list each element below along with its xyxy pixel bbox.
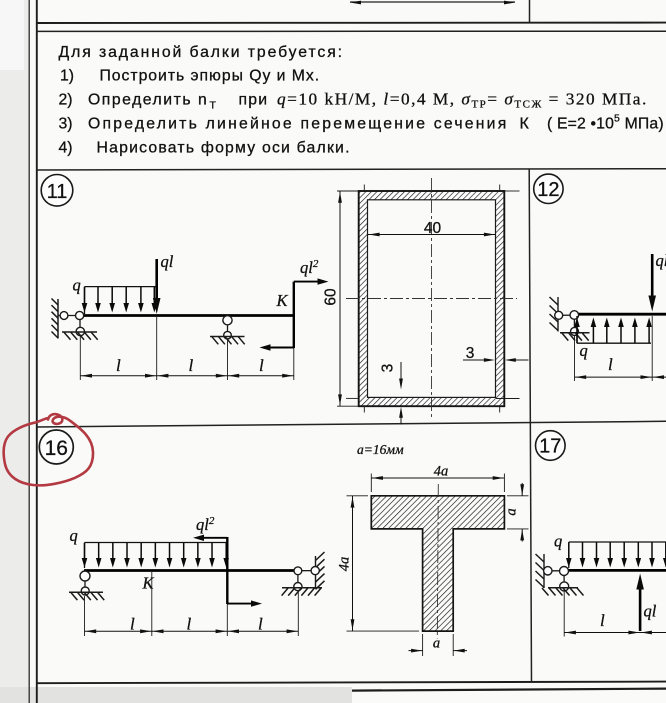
svg-text:l: l [116,356,121,375]
svg-text:q: q [70,526,78,545]
svg-text:3: 3 [466,345,475,362]
svg-text:Нарисовать форму оси балки.: Нарисовать форму оси балки. [97,140,351,157]
svg-text:12: 12 [537,179,559,201]
svg-text:( Е=2 •105 МПа): ( Е=2 •105 МПа) [547,113,664,133]
svg-text:а=16мм: а=16мм [357,442,404,457]
svg-text:11: 11 [47,181,68,203]
svg-text:Определить линейное перемещени: Определить линейное перемещение сечения [88,116,508,133]
svg-text:60: 60 [323,288,340,306]
svg-text:Т: Т [210,100,217,112]
svg-text:q: q [73,276,81,295]
svg-text:a: a [433,636,440,652]
svg-text:16: 16 [45,437,68,460]
svg-text:ql: ql [161,252,174,271]
svg-text:l: l [258,615,263,634]
svg-text:3): 3) [59,116,73,133]
svg-text:2): 2) [59,92,73,109]
svg-text:K: K [276,291,289,310]
svg-text:q: q [554,532,562,551]
svg-text:4a: 4a [337,557,353,572]
svg-text:4): 4) [59,140,73,157]
svg-text:Для заданной балки требуется:: Для заданной балки требуется: [59,44,344,61]
svg-text:при: при [239,92,269,109]
svg-text:q: q [580,341,588,360]
svg-text:l: l [259,356,264,375]
svg-text:l: l [187,615,192,634]
svg-text:l: l [600,611,605,630]
svg-text:4a: 4a [434,464,449,480]
svg-text:Определить n: Определить n [88,92,208,109]
svg-text:K: K [142,574,155,593]
svg-text:l: l [189,356,194,375]
svg-text:17: 17 [539,436,561,458]
svg-text:3: 3 [380,364,397,373]
svg-text:40: 40 [424,220,442,237]
svg-text:ql: ql [656,251,666,270]
svg-text:q=10 kH/M, l=0,4 M, σТР= σТСЖ: q=10 kH/M, l=0,4 M, σТР= σТСЖ = 320 МПа. [277,90,648,111]
svg-text:1): 1) [60,68,74,85]
svg-text:l: l [130,615,135,634]
svg-text:Построить эпюры Qy и Mх.: Построить эпюры Qy и Mх. [100,68,321,85]
svg-text:l: l [608,355,613,374]
svg-text:К: К [520,116,530,133]
svg-text:a: a [504,508,520,515]
svg-text:ql: ql [644,602,657,621]
